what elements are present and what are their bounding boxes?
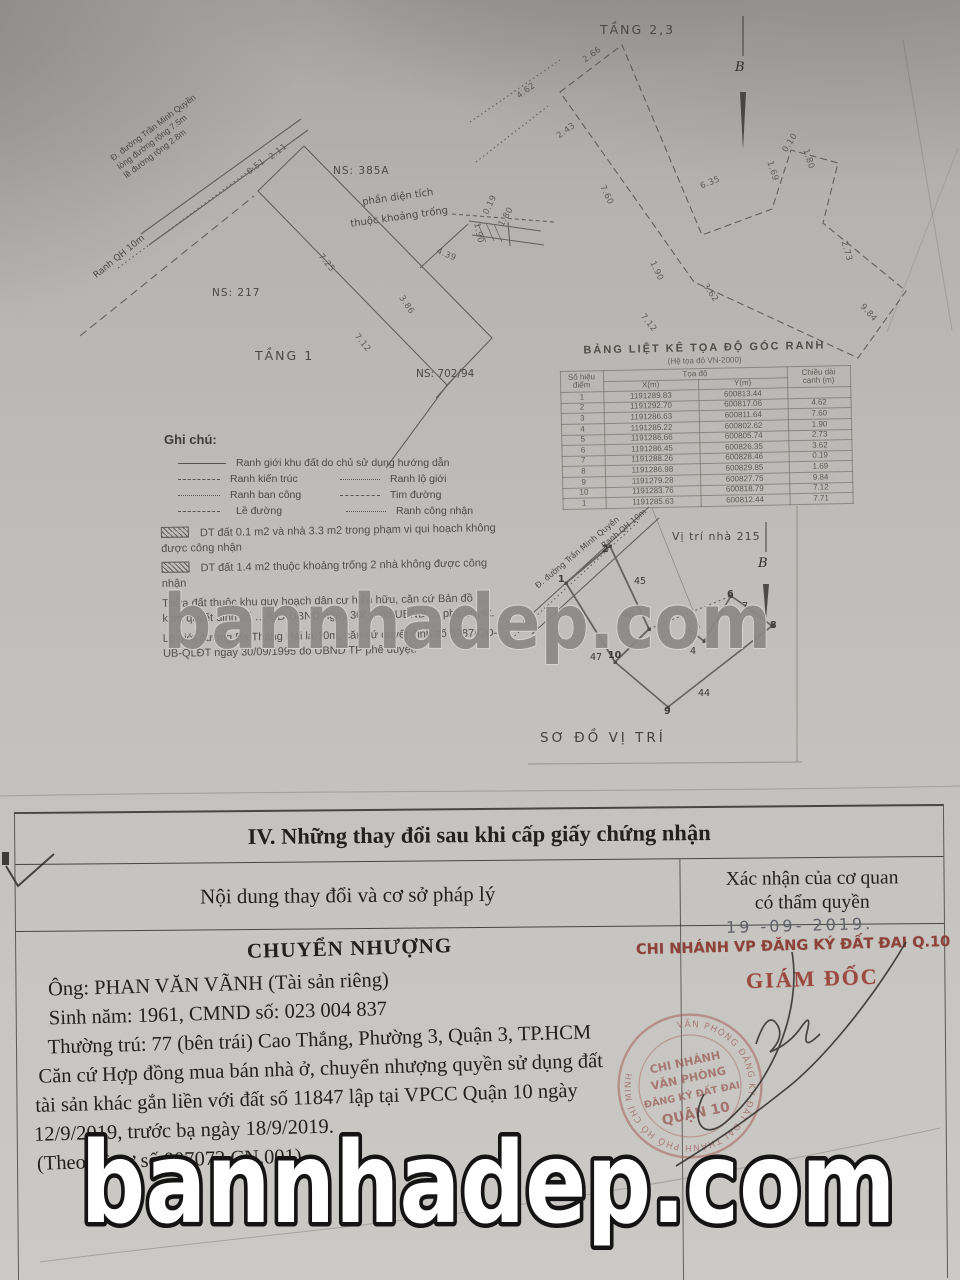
point-label: 6 [727, 589, 734, 600]
point-label: 2 [602, 544, 609, 555]
scanned-land-certificate: TẦNG 2,3 TẦNG 1 NS: 385A phần diện tích … [0, 0, 960, 1280]
point-label: 1 [558, 574, 565, 585]
svg-text:VĂN PHÒNG ĐĂNG KÝ ĐẤT ĐAI THÀN: VĂN PHÒNG ĐĂNG KÝ ĐẤT ĐAI THÀNH PHỐ HỒ C… [610, 1006, 770, 1167]
site-point-labels: 12454647109444678 [0, 0, 960, 800]
point-label: 9 [664, 706, 671, 717]
point-label: 10 [608, 650, 621, 661]
point-label: 45 [634, 576, 646, 587]
point-label: 46 [622, 610, 634, 621]
point-label: 7 [742, 601, 748, 612]
point-label: 47 [590, 652, 602, 663]
round-official-stamp: VĂN PHÒNG ĐĂNG KÝ ĐẤT ĐAI THÀNH PHỐ HỒ C… [569, 965, 811, 1207]
point-label: 8 [770, 620, 777, 631]
date-stamp: 19 -09- 2019. [726, 914, 874, 937]
point-label: 44 [698, 688, 710, 699]
section4-title: IV. Những thay đổi sau khi cấp giấy chứn… [15, 806, 943, 865]
stamp-ring-text: VĂN PHÒNG ĐĂNG KÝ ĐẤT ĐAI THÀNH PHỐ HỒ C… [610, 1006, 770, 1167]
point-label: 4 [690, 646, 696, 657]
column-header-content: Nội dung thay đổi và cơ sở pháp lý [15, 859, 681, 931]
